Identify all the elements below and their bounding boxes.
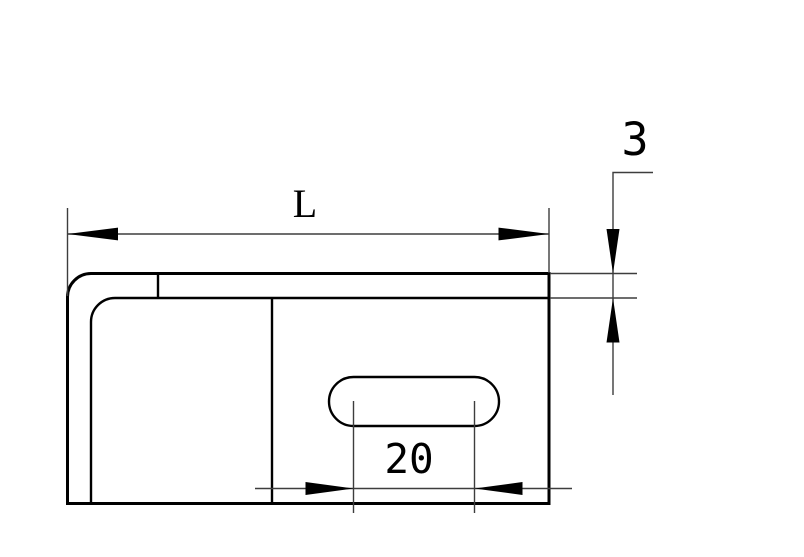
drawing-canvas: L 3 20 [0, 0, 804, 557]
dim-3-leader [613, 173, 653, 396]
dim-L-arrow-left [68, 228, 119, 241]
dim-3-arrow-down [607, 229, 620, 274]
dim-L-arrow-right [499, 228, 550, 241]
dimension-3: 3 [550, 113, 653, 395]
dim-20-arrow-left [306, 482, 354, 495]
bracket-technical-drawing: L 3 20 [0, 0, 804, 557]
dim-3-arrow-up [607, 298, 620, 343]
dimension-20: 20 [255, 401, 572, 513]
dimension-L: L [68, 181, 550, 296]
slot-cutout [329, 377, 499, 426]
bend-inner-edge [91, 298, 549, 504]
part-outline [68, 274, 550, 504]
dim-20-label: 20 [384, 435, 433, 483]
dim-20-arrow-right [475, 482, 523, 495]
dim-L-label: L [293, 181, 317, 226]
dim-3-label: 3 [621, 113, 648, 166]
